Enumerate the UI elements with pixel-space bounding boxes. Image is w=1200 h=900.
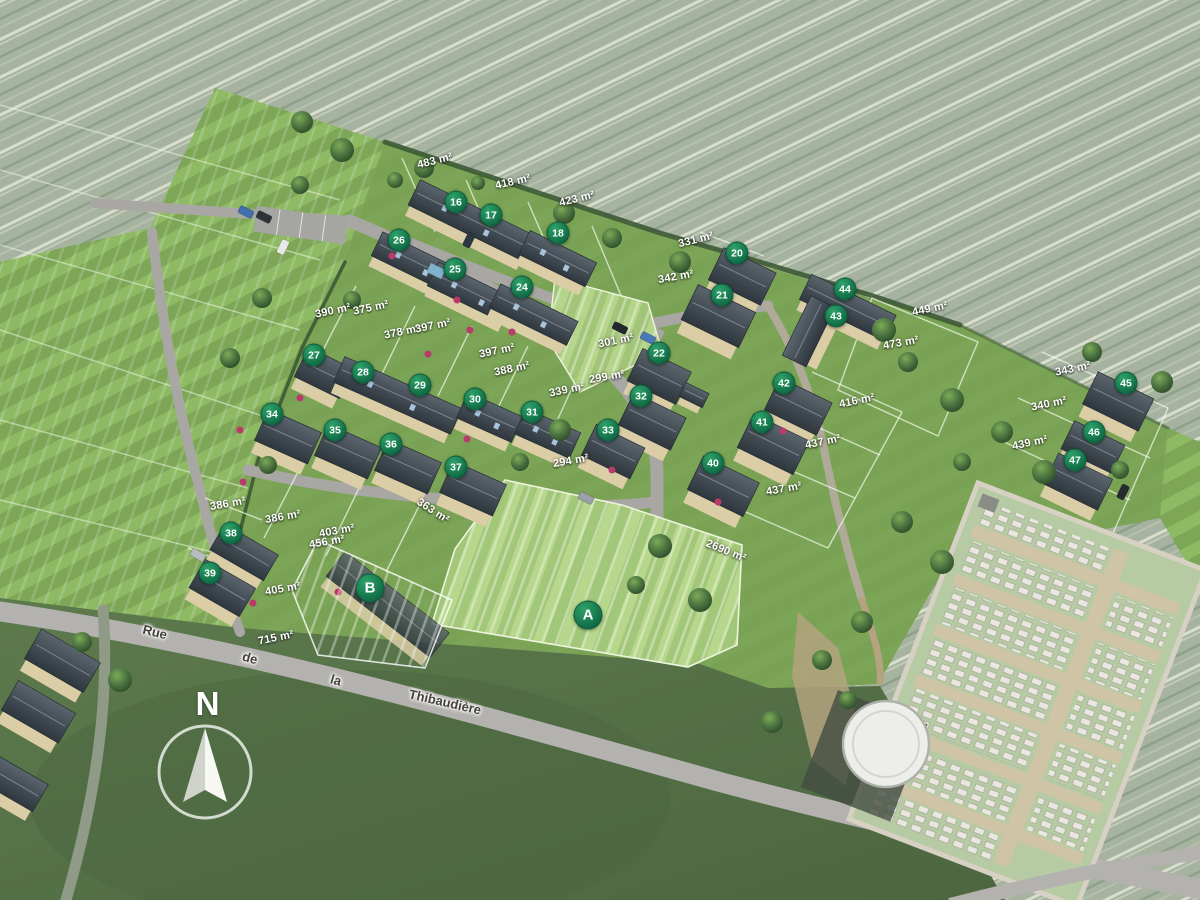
- tree: [898, 352, 918, 372]
- lot-marker-20[interactable]: 20: [726, 242, 749, 265]
- lot-marker-36[interactable]: 36: [380, 433, 403, 456]
- lot-marker-33[interactable]: 33: [597, 419, 620, 442]
- tree: [471, 176, 485, 190]
- tree: [1111, 461, 1129, 479]
- tree: [220, 348, 240, 368]
- tree: [991, 421, 1013, 443]
- tree: [627, 576, 645, 594]
- lot-marker-46[interactable]: 46: [1083, 421, 1106, 444]
- flower-bush: [250, 600, 257, 607]
- tree: [940, 388, 964, 412]
- flower-bush: [780, 428, 787, 435]
- tree: [891, 511, 913, 533]
- tree: [648, 534, 672, 558]
- tree: [812, 650, 832, 670]
- flower-bush: [609, 467, 616, 474]
- lot-marker-37[interactable]: 37: [445, 456, 468, 479]
- lot-marker-42[interactable]: 42: [773, 372, 796, 395]
- tree: [1082, 342, 1102, 362]
- tree: [549, 419, 571, 441]
- tree: [688, 588, 712, 612]
- lot-marker-27[interactable]: 27: [303, 344, 326, 367]
- lot-marker-26[interactable]: 26: [388, 229, 411, 252]
- lot-marker-29[interactable]: 29: [409, 374, 432, 397]
- tree: [602, 228, 622, 248]
- water-tank: [843, 701, 929, 787]
- lot-marker-28[interactable]: 28: [352, 361, 375, 384]
- flower-bush: [237, 427, 244, 434]
- lot-marker-41[interactable]: 41: [751, 411, 774, 434]
- tree: [1032, 460, 1056, 484]
- compass: N: [150, 685, 265, 820]
- tree: [387, 172, 403, 188]
- zone-marker-B[interactable]: B: [356, 574, 385, 603]
- lot-marker-43[interactable]: 43: [825, 305, 848, 328]
- tree: [930, 550, 954, 574]
- lot-marker-22[interactable]: 22: [648, 342, 671, 365]
- lot-marker-45[interactable]: 45: [1115, 372, 1138, 395]
- tree: [511, 453, 529, 471]
- lot-marker-18[interactable]: 18: [547, 222, 570, 245]
- tree: [291, 111, 313, 133]
- flower-bush: [297, 395, 304, 402]
- lot-marker-40[interactable]: 40: [702, 452, 725, 475]
- tree: [259, 456, 277, 474]
- compass-rose: [150, 685, 265, 820]
- flower-bush: [509, 329, 516, 336]
- tree: [72, 632, 92, 652]
- tree: [330, 138, 354, 162]
- lot-marker-21[interactable]: 21: [711, 284, 734, 307]
- lot-marker-47[interactable]: 47: [1064, 449, 1087, 472]
- tree: [761, 711, 783, 733]
- tree: [851, 611, 873, 633]
- flower-bush: [464, 436, 471, 443]
- lot-marker-32[interactable]: 32: [630, 385, 653, 408]
- lot-marker-16[interactable]: 16: [445, 191, 468, 214]
- lot-marker-44[interactable]: 44: [834, 278, 857, 301]
- lot-marker-34[interactable]: 34: [261, 403, 284, 426]
- flower-bush: [467, 327, 474, 334]
- flower-bush: [715, 499, 722, 506]
- tree: [291, 176, 309, 194]
- tree: [252, 288, 272, 308]
- lot-marker-39[interactable]: 39: [199, 562, 222, 585]
- zone-marker-A[interactable]: A: [574, 601, 603, 630]
- lot-marker-30[interactable]: 30: [464, 388, 487, 411]
- tree: [839, 691, 857, 709]
- lot-marker-38[interactable]: 38: [220, 522, 243, 545]
- masterplan-map: N 16171826252420214443272829303122324241…: [0, 0, 1200, 900]
- lot-marker-24[interactable]: 24: [511, 276, 534, 299]
- flower-bush: [240, 479, 247, 486]
- lot-marker-31[interactable]: 31: [521, 401, 544, 424]
- lot-marker-17[interactable]: 17: [480, 204, 503, 227]
- tree: [953, 453, 971, 471]
- lot-marker-35[interactable]: 35: [324, 419, 347, 442]
- tree: [108, 668, 132, 692]
- flower-bush: [425, 351, 432, 358]
- tree: [1151, 371, 1173, 393]
- flower-bush: [454, 297, 461, 304]
- flower-bush: [389, 253, 396, 260]
- lot-marker-25[interactable]: 25: [444, 258, 467, 281]
